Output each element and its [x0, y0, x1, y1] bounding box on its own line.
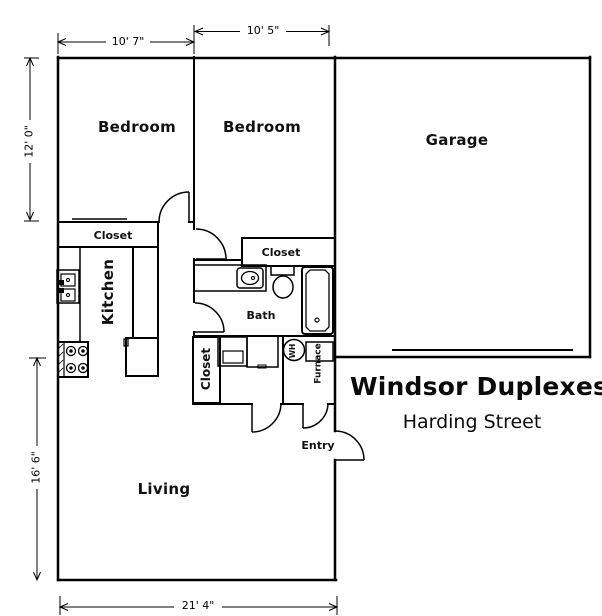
dim-bedroom-depth-text: 12' 0" — [24, 102, 37, 182]
entry-inner-door — [303, 403, 328, 428]
dim-bedroom-right-width-text: 10' 5" — [241, 25, 285, 36]
door-arc — [303, 403, 328, 428]
water-heater-label: WH — [289, 331, 299, 371]
floorplan-drawing — [0, 0, 602, 616]
door-arc — [195, 303, 224, 332]
page-title: Windsor Duplexes — [350, 374, 590, 399]
dim-unit-width-text: 21' 4" — [176, 600, 220, 611]
furnace-label: Furnace — [315, 334, 326, 394]
hall-living-door — [252, 403, 281, 432]
bath-door — [195, 303, 224, 332]
vanity-sink-drain — [252, 277, 255, 280]
kitchen-label: Kitchen — [101, 252, 119, 332]
bathtub-drain — [315, 318, 319, 322]
stove-hatch — [59, 344, 63, 372]
sink-faucet — [59, 280, 64, 285]
kitchen-cabinet — [126, 338, 158, 376]
sink-faucet-2 — [59, 288, 64, 293]
washer-inner — [223, 351, 243, 363]
bedroom-right-label: Bedroom — [222, 120, 302, 135]
sink-drain-bottom — [67, 294, 70, 297]
bath-closet-label: Closet — [251, 247, 311, 258]
dim-living-depth-text: 16' 6" — [31, 428, 44, 508]
laundry-closet-label: Closet — [200, 329, 214, 409]
vanity-sink-bowl — [242, 272, 259, 285]
vanity-counter — [194, 265, 266, 291]
toilet-bowl — [273, 276, 293, 298]
page-subtitle: Harding Street — [352, 413, 592, 432]
bedroom-right-door — [196, 229, 226, 259]
hall-closet-label: Closet — [83, 230, 143, 241]
garage-label: Garage — [417, 133, 497, 148]
sink-drain-top — [67, 279, 70, 282]
dim-bedroom-left-width-text: 10' 7" — [106, 36, 150, 47]
bath-label: Bath — [231, 310, 291, 321]
entry-label: Entry — [288, 440, 348, 451]
floor-plan: Bedroom Bedroom Garage Living Kitchen Ba… — [0, 0, 602, 616]
dryer — [247, 336, 278, 367]
stove-burners — [67, 347, 88, 373]
door-arc — [252, 403, 281, 432]
bedroom-left-label: Bedroom — [97, 120, 177, 135]
bath-fixtures — [194, 265, 333, 334]
door-arc — [196, 229, 226, 259]
door-arc — [159, 192, 189, 222]
bedroom-left-door — [159, 192, 189, 222]
living-label: Living — [124, 482, 204, 497]
toilet-tank — [271, 266, 294, 275]
